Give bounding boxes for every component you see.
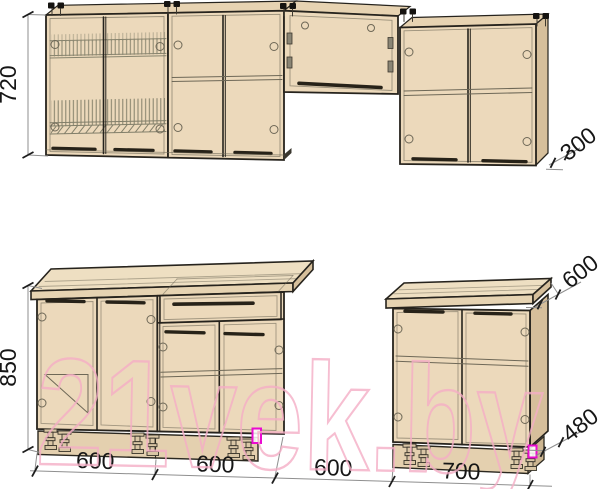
dim-label-600-depth: 600 [557, 249, 600, 293]
door-handle [483, 161, 526, 162]
door-handle [115, 150, 153, 151]
door-handle [47, 301, 84, 302]
kitchen-technical-drawing: 720 300 850 600 480 600 600 600 700 21ve… [0, 0, 600, 489]
wall-cabinet-shelf [168, 11, 292, 160]
door-handle [235, 152, 271, 153]
wall-cabinet-right [400, 24, 548, 166]
door-handle [405, 311, 443, 312]
door-handle [175, 151, 211, 152]
dim-label-300: 300 [555, 122, 600, 166]
wall-right-side-face [536, 14, 548, 165]
dim-label-850: 850 [0, 348, 21, 386]
wall-cabinet-row [46, 1, 549, 166]
dim-wall-height [23, 12, 49, 159]
door-handle [475, 313, 511, 314]
door-handle [413, 159, 456, 160]
door-handle [53, 148, 95, 149]
hinge [388, 61, 393, 72]
wall-cabinet-hood-flap [284, 11, 398, 94]
watermark-text: 21vek.by [35, 327, 544, 489]
bottom-corner-edge [284, 148, 292, 160]
hinge [388, 38, 393, 49]
dish-rack-lower [50, 98, 166, 134]
hinge [287, 33, 292, 44]
dim-label-480: 480 [557, 403, 600, 447]
base-right-countertop [386, 279, 551, 309]
door-handle [107, 302, 144, 303]
wall-cabinet-dish [46, 13, 168, 158]
hinge [287, 57, 292, 68]
kitchen-drawing-canvas: 720 300 850 600 480 600 600 600 700 21ve… [0, 0, 600, 489]
dish-rack-upper [50, 32, 166, 58]
drawer-handle [174, 303, 253, 304]
dim-label-720: 720 [0, 65, 21, 103]
